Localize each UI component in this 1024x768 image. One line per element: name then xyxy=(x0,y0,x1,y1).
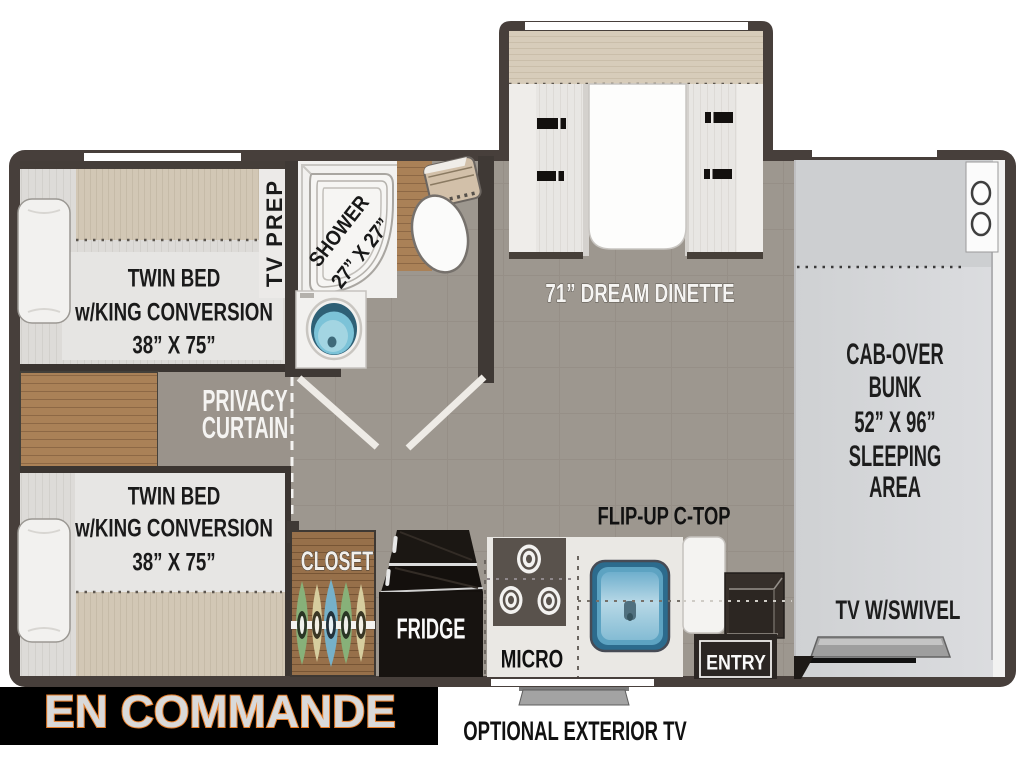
svg-text:EN COMMANDE: EN COMMANDE xyxy=(44,686,396,736)
svg-text:MICRO: MICRO xyxy=(501,645,563,673)
svg-text:BUNK: BUNK xyxy=(869,372,922,405)
svg-text:38” X 75”: 38” X 75” xyxy=(132,548,215,576)
svg-text:TV W/SWIVEL: TV W/SWIVEL xyxy=(836,595,961,625)
svg-text:ENTRY: ENTRY xyxy=(706,651,766,675)
svg-text:w/KING CONVERSION: w/KING CONVERSION xyxy=(74,514,273,542)
svg-text:CAB-OVER: CAB-OVER xyxy=(846,339,944,372)
svg-text:OPTIONAL EXTERIOR TV: OPTIONAL EXTERIOR TV xyxy=(463,716,687,746)
svg-text:AREA: AREA xyxy=(869,472,921,505)
svg-text:FRIDGE: FRIDGE xyxy=(397,614,466,646)
svg-text:SLEEPING: SLEEPING xyxy=(849,441,941,474)
svg-text:CLOSET: CLOSET xyxy=(301,545,373,576)
svg-text:TV PREP: TV PREP xyxy=(262,179,287,287)
svg-text:71” DREAM DINETTE: 71” DREAM DINETTE xyxy=(545,278,734,308)
svg-text:w/KING CONVERSION: w/KING CONVERSION xyxy=(74,298,273,326)
svg-text:TWIN BED: TWIN BED xyxy=(128,264,221,292)
svg-text:FLIP-UP C-TOP: FLIP-UP C-TOP xyxy=(598,502,731,530)
svg-text:38” X 75”: 38” X 75” xyxy=(132,331,215,359)
svg-text:52” X 96”: 52” X 96” xyxy=(854,407,935,440)
svg-text:TWIN BED: TWIN BED xyxy=(128,482,221,510)
svg-text:CURTAIN: CURTAIN xyxy=(202,412,288,446)
